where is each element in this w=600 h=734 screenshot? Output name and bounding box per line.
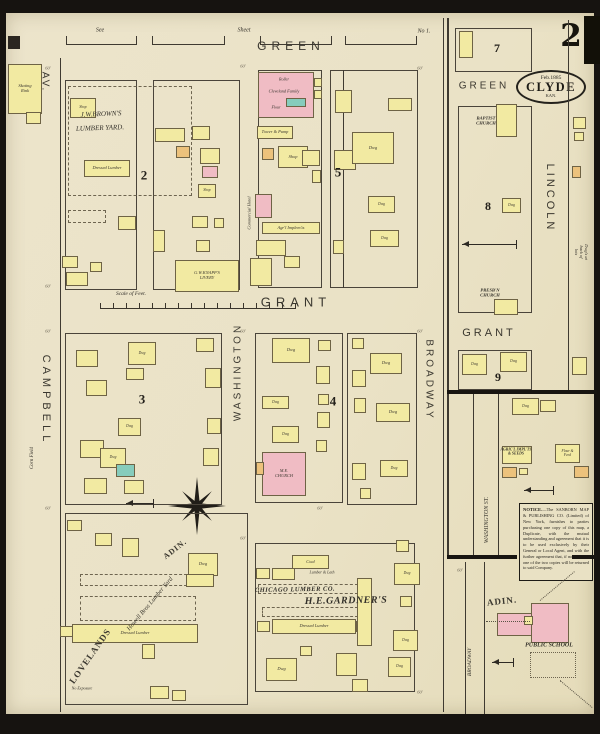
dimension-label: 60' <box>45 283 50 288</box>
building <box>502 467 517 478</box>
map-line <box>60 58 61 712</box>
sanborn-map-page: { "title": "Sanborn map, Clyde Kansas, S… <box>0 0 600 734</box>
dimension-label: 60' <box>417 689 422 694</box>
building <box>62 256 78 268</box>
building <box>118 216 136 230</box>
map-label-dwg-s-at-back-of-lots: Dwg's at back of lots <box>573 243 589 262</box>
building-dwg: Dwg <box>272 338 310 363</box>
building <box>207 418 221 434</box>
map-label-public-school: PUBLIC SCHOOL <box>525 643 573 650</box>
block-number-8: 8 <box>485 200 491 214</box>
map-label-cleveland-family: Cleveland Family <box>269 90 300 95</box>
building <box>262 148 274 160</box>
building-dressed-lumber: Dressed Lumber <box>84 160 130 177</box>
map-label-roller: Roller <box>279 78 289 83</box>
building <box>192 216 208 228</box>
building <box>126 368 144 380</box>
building-dwg: Dwg <box>502 198 521 213</box>
map-label-lumber-yard-: LUMBER YARD. <box>76 123 124 133</box>
building <box>354 398 366 413</box>
building <box>494 299 518 315</box>
map-line <box>568 20 569 390</box>
map-label-corn-field: Corn Field <box>30 447 36 469</box>
dimension-label: 60' <box>417 65 422 70</box>
map-label-lumber-lath: Lumber & Lath <box>310 571 335 576</box>
building <box>255 194 272 218</box>
dotted-guide-line <box>560 680 593 708</box>
building-dwg: Dwg <box>266 658 297 681</box>
building-shop: Shop <box>198 184 216 198</box>
building <box>172 690 186 701</box>
block-number-4: 4 <box>330 395 337 410</box>
building <box>186 574 214 587</box>
sheet-reference-bracket <box>152 36 225 45</box>
block-number-2: 2 <box>141 169 148 184</box>
building <box>124 480 144 494</box>
building <box>196 338 214 352</box>
map-label-flour: Flour <box>271 106 280 111</box>
building <box>574 132 584 141</box>
notice-title: NOTICE. <box>523 507 542 512</box>
building-m-e-: M.E. CHURCH <box>262 452 306 496</box>
building <box>90 262 102 272</box>
building <box>352 338 364 349</box>
building-dwg: Dwg <box>272 426 299 443</box>
building <box>256 462 264 475</box>
building-dwg: Dwg <box>368 196 395 213</box>
building <box>205 368 221 388</box>
building <box>572 166 581 178</box>
map-label-commercial-hotel: Commercial Hotel <box>246 196 251 229</box>
map-line <box>447 18 449 556</box>
sheet-reference-bracket <box>345 36 417 45</box>
building <box>192 126 210 140</box>
street-label-grant: GRANT <box>261 295 332 310</box>
building-dwg: Dwg <box>352 132 394 164</box>
map-label-sheet: Sheet <box>238 28 251 35</box>
block-number-9: 9 <box>495 371 501 385</box>
building <box>250 258 272 286</box>
building-dwg: Dwg <box>512 398 539 415</box>
building <box>214 218 224 228</box>
notice-body: —The SANBORN MAP & PUBLISHING CO. (Limit… <box>523 507 589 570</box>
building <box>316 366 330 384</box>
map-label-baptist: BAPTIST CHURCH <box>476 116 496 127</box>
building <box>316 440 327 452</box>
section-divider-line <box>447 555 517 559</box>
map-line <box>484 562 485 714</box>
street-label-av-: AV. <box>40 72 51 92</box>
map-label-presb-n: PRESB'N CHURCH <box>480 288 500 299</box>
section-divider-line <box>447 390 597 394</box>
dimension-label: 60' <box>45 328 50 333</box>
building <box>318 340 331 351</box>
building <box>333 240 344 254</box>
lumber-pile-outline <box>262 607 358 617</box>
building-tower-pump: Tower & Pump <box>257 126 293 139</box>
survey-arrow-icon <box>462 244 517 245</box>
map-label-scale-of-feet-: Scale of Feet. <box>116 291 146 297</box>
map-label-agric-l-impl-ts: AGRIC'L IMPL'TS & SEEDS <box>501 448 532 457</box>
building <box>540 400 556 412</box>
building-dwg: Dwg <box>128 342 156 365</box>
sheet-number: 2 <box>556 18 586 54</box>
building-dwg: Dwg <box>188 553 218 576</box>
building-dwg: Dwg <box>388 657 411 677</box>
block-number-7: 7 <box>494 42 500 56</box>
building-dwg: Dwg <box>370 230 399 247</box>
dimension-label: 60' <box>240 328 245 333</box>
building <box>300 646 312 656</box>
street-label-lincoln: LINCOLN <box>544 164 556 233</box>
building-coal: Coal <box>292 555 329 569</box>
lumber-pile-outline <box>80 574 192 586</box>
sheet-corner-tab <box>584 16 600 64</box>
building <box>574 466 589 478</box>
dimension-label: 60' <box>417 328 422 333</box>
street-label-broadway: BROADWAY <box>424 339 435 420</box>
building <box>66 272 88 286</box>
building-dwg: Dwg <box>393 630 418 651</box>
section-divider-line <box>572 555 597 559</box>
building-skating: Skating Rink <box>8 64 42 114</box>
building <box>336 653 357 676</box>
dimension-label: 60' <box>45 505 50 510</box>
survey-arrow-icon <box>524 490 554 491</box>
building <box>314 78 322 87</box>
building-dwg: Dwg <box>500 352 527 372</box>
dimension-label: 60' <box>240 535 245 540</box>
building <box>116 464 135 477</box>
building-g-w-knapp-s: G.W.KNAPP'S LIVERY <box>175 260 239 292</box>
lumber-pile-outline <box>68 210 106 223</box>
building-agr-l-implem-ts: Agr'l Implem'ts <box>262 222 320 234</box>
map-label-see: See <box>96 28 104 35</box>
street-label-washington-st-: WASHINGTON ST. <box>484 497 490 543</box>
dimension-label: 60' <box>240 63 245 68</box>
map-label-j-w-brown-s: J.W.BROWN'S <box>80 109 121 118</box>
dimension-label: 60' <box>45 65 50 70</box>
building <box>400 596 412 607</box>
building <box>153 230 165 252</box>
sheet-reference-bracket <box>66 36 137 45</box>
building <box>357 578 372 646</box>
building <box>388 98 412 111</box>
building-dwg: Dwg <box>370 353 402 374</box>
building <box>76 350 98 367</box>
building <box>396 540 409 552</box>
building <box>60 626 73 637</box>
building-dwg: Dwg <box>394 563 420 585</box>
building-dwg: Dwg <box>118 418 141 436</box>
block-number-3: 3 <box>139 393 146 408</box>
map-line <box>443 18 444 712</box>
survey-arrow-icon <box>126 503 154 504</box>
building <box>84 478 107 494</box>
building <box>459 31 473 58</box>
dotted-guide-line <box>486 621 530 622</box>
building <box>200 148 220 164</box>
building <box>272 568 295 580</box>
building <box>360 488 371 499</box>
street-label-grant: GRANT <box>462 327 516 339</box>
map-line <box>473 392 474 556</box>
building <box>531 603 569 643</box>
building <box>150 686 169 699</box>
survey-arrow-icon <box>492 662 514 663</box>
building <box>86 380 107 396</box>
building <box>202 166 218 178</box>
building <box>196 240 210 252</box>
building <box>312 170 321 183</box>
building <box>122 538 139 557</box>
building <box>572 357 587 375</box>
street-label-green: GREEN <box>459 81 510 92</box>
building <box>203 448 219 466</box>
building <box>257 621 270 632</box>
paper-corner-mark <box>8 36 20 49</box>
building <box>317 412 330 428</box>
building <box>26 112 41 124</box>
lumber-pile-outline <box>530 652 576 678</box>
building <box>284 256 300 268</box>
map-label-h-e-gardner-s: H.E.GARDNER'S <box>305 595 388 608</box>
building <box>335 90 352 113</box>
building-dwg: Dwg <box>380 460 408 477</box>
building-dwg: Dwg <box>376 403 410 422</box>
building <box>176 146 190 158</box>
building <box>142 644 155 659</box>
building-dwg: Dwg <box>262 396 289 409</box>
building <box>256 240 286 256</box>
building <box>67 520 82 531</box>
building <box>352 370 366 387</box>
notice-box: NOTICE.—The SANBORN MAP & PUBLISHING CO.… <box>519 503 593 581</box>
street-label-green: GREEN <box>257 39 325 53</box>
building-dressed-lumber: Dressed Lumber <box>272 619 356 634</box>
building <box>314 90 322 99</box>
street-label-broadway: BROADWAY <box>467 648 473 676</box>
street-label-adin-: ADIN. <box>486 594 517 607</box>
building <box>573 117 586 129</box>
dimension-label: 60' <box>457 567 462 572</box>
map-canvas: 2 Feb.1885 CLYDE KAN. NOTICE.—The SANBOR… <box>0 0 600 734</box>
building-flour-: Flour & Feed <box>555 444 580 463</box>
dimension-label: 60' <box>317 505 322 510</box>
street-label-washington: WASHINGTON <box>233 323 244 421</box>
building <box>256 568 270 579</box>
building <box>155 128 185 142</box>
building <box>352 679 368 692</box>
building <box>318 394 329 405</box>
building-dwg: Dwg <box>462 354 487 375</box>
map-label-no-1-: No 1. <box>417 29 430 36</box>
map-label-no-exposure: No Exposure <box>72 687 93 692</box>
street-label-campbell: CAMPBELL <box>40 355 52 446</box>
stamp-state: KAN. <box>546 94 557 99</box>
map-line <box>465 562 466 714</box>
building <box>519 468 528 475</box>
building <box>95 533 112 546</box>
building <box>352 463 366 480</box>
building <box>302 150 320 166</box>
building <box>286 98 306 107</box>
block-number-5: 5 <box>335 166 342 181</box>
building <box>496 104 517 137</box>
map-line <box>498 392 499 556</box>
map-label-chicago-lumber-co-: CHICAGO LUMBER CO. <box>255 586 335 595</box>
clyde-date-stamp: Feb.1885 CLYDE KAN. <box>516 70 586 104</box>
